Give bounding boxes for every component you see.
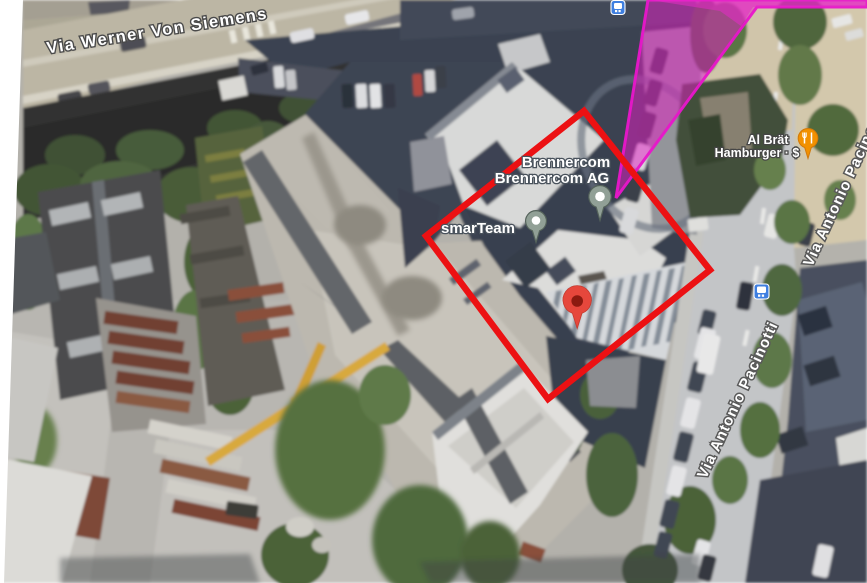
svg-text:Brennercom: Brennercom bbox=[522, 154, 610, 171]
svg-text:Hamburger · $: Hamburger · $ bbox=[715, 146, 800, 160]
svg-text:smarTeam: smarTeam bbox=[441, 220, 515, 237]
svg-text:Al Brät: Al Brät bbox=[748, 133, 790, 147]
svg-text:Brennercom AG: Brennercom AG bbox=[495, 170, 609, 187]
